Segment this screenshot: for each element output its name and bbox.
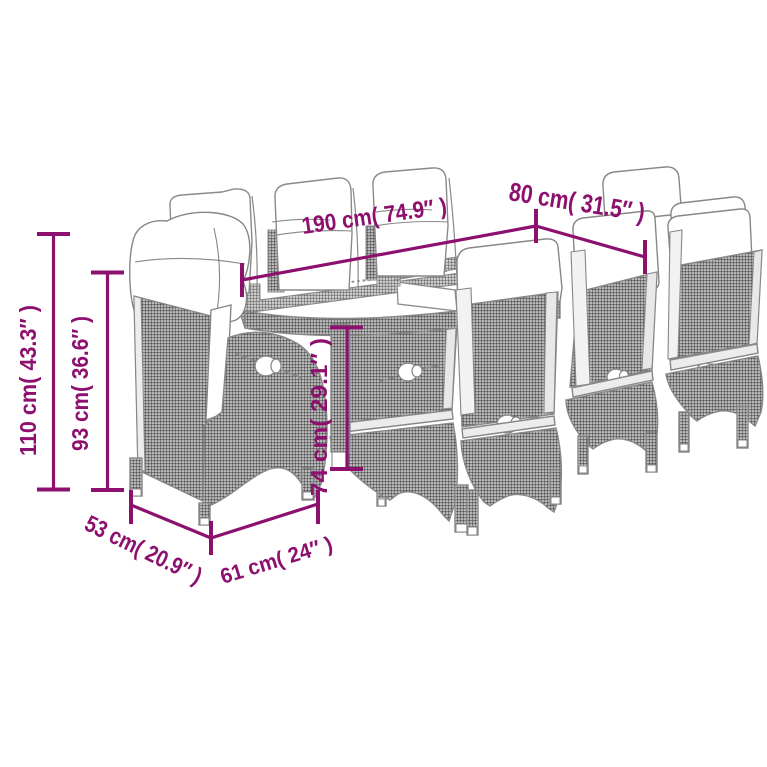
svg-text:93 cm( 36.6″ ): 93 cm( 36.6″ )	[67, 316, 93, 451]
svg-text:110 cm( 43.3″ ): 110 cm( 43.3″ )	[15, 305, 41, 456]
svg-text:74 cm( 29.1″ ): 74 cm( 29.1″ )	[306, 338, 332, 496]
